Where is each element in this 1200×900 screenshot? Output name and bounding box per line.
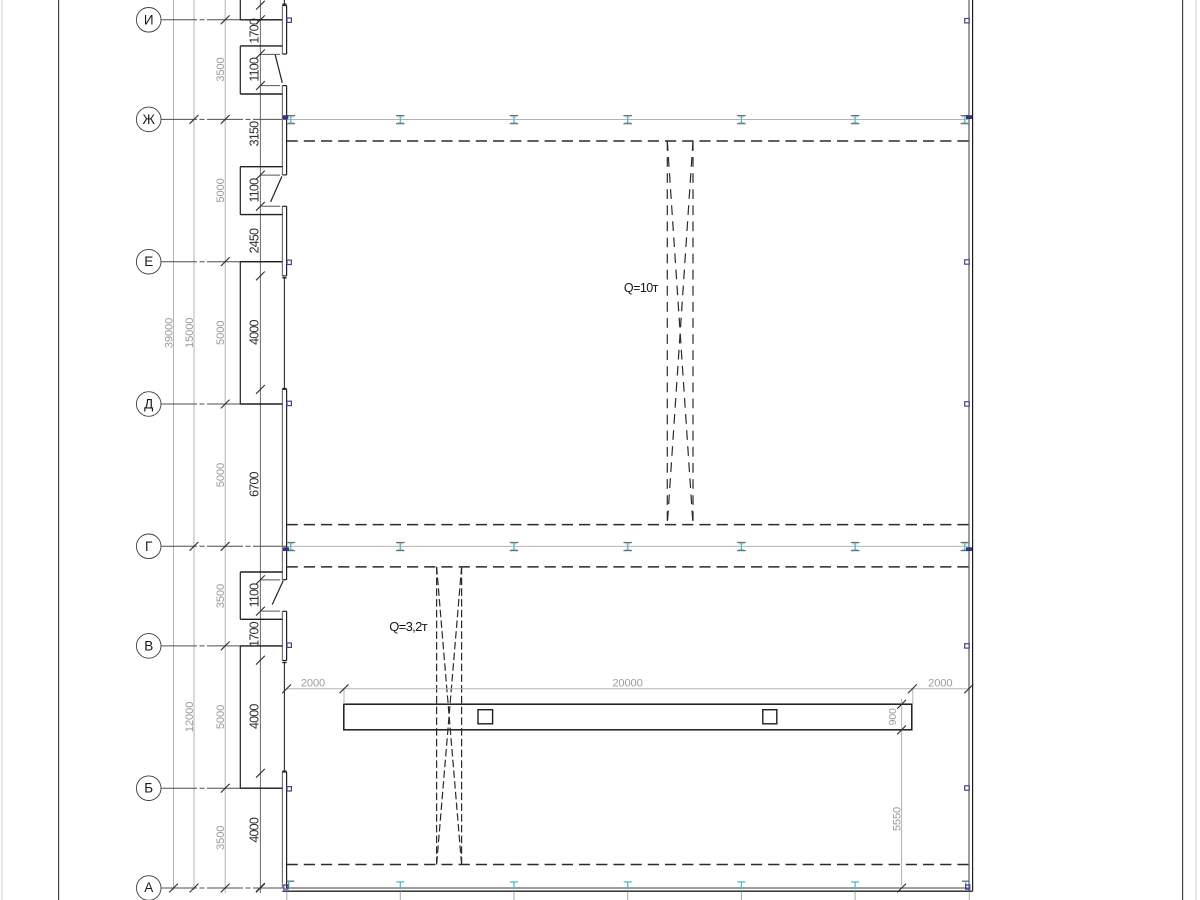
svg-text:5000: 5000 [215, 321, 227, 345]
svg-text:1100: 1100 [248, 57, 262, 82]
svg-text:Е: Е [144, 254, 153, 269]
svg-text:Д: Д [144, 397, 153, 412]
svg-text:И: И [144, 12, 154, 27]
svg-text:Г: Г [145, 539, 153, 554]
svg-text:Б: Б [144, 781, 153, 796]
svg-text:3150: 3150 [248, 121, 262, 146]
svg-text:20000: 20000 [612, 678, 642, 690]
svg-text:1100: 1100 [248, 178, 262, 203]
svg-text:5550: 5550 [891, 807, 903, 831]
svg-text:2000: 2000 [301, 678, 325, 690]
svg-text:5000: 5000 [215, 705, 227, 729]
svg-text:В: В [144, 638, 153, 653]
svg-text:1700: 1700 [248, 18, 262, 43]
svg-text:4000: 4000 [248, 319, 262, 344]
svg-text:6700: 6700 [248, 471, 262, 496]
svg-text:4000: 4000 [248, 817, 262, 842]
svg-text:А: А [144, 880, 153, 895]
svg-text:15000: 15000 [184, 318, 196, 348]
svg-text:Ж: Ж [142, 112, 155, 127]
svg-text:2450: 2450 [248, 228, 262, 253]
svg-text:3500: 3500 [215, 826, 227, 850]
svg-text:39000: 39000 [164, 318, 176, 348]
svg-text:4000: 4000 [248, 704, 262, 729]
svg-text:2000: 2000 [928, 678, 952, 690]
svg-text:1700: 1700 [248, 621, 262, 646]
svg-text:900: 900 [887, 708, 899, 725]
svg-text:3500: 3500 [215, 584, 227, 608]
svg-text:5000: 5000 [215, 463, 227, 487]
svg-text:5000: 5000 [215, 178, 227, 202]
svg-text:1100: 1100 [248, 583, 262, 608]
svg-text:Q=3,2т: Q=3,2т [389, 619, 428, 634]
svg-text:3500: 3500 [215, 57, 227, 81]
svg-text:Q=10т: Q=10т [624, 281, 659, 295]
svg-text:12000: 12000 [184, 702, 196, 732]
